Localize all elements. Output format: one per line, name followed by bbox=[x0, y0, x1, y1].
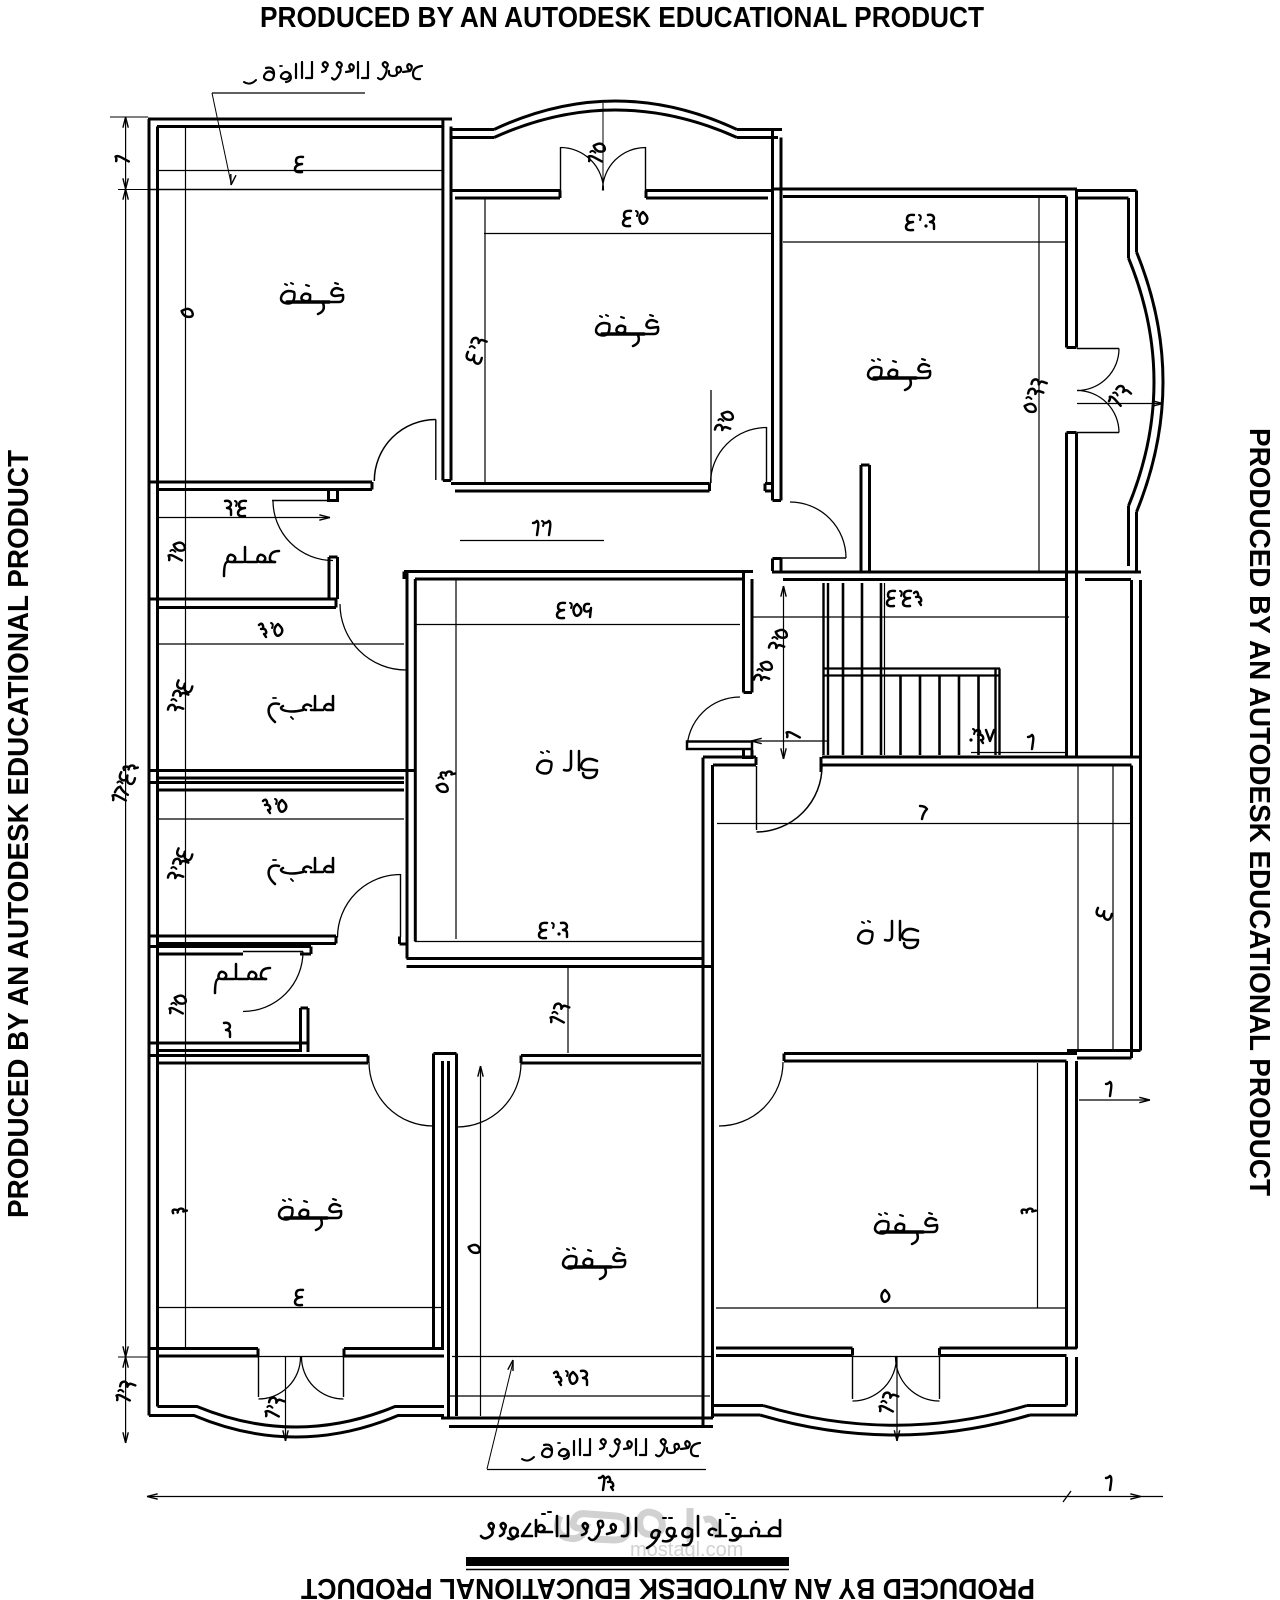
svg-text:PRODUCED BY AN AUTODESK EDUCAT: PRODUCED BY AN AUTODESK EDUCATIONAL PROD… bbox=[1243, 428, 1275, 1196]
svg-text:PRODUCED BY AN AUTODESK EDUCAT: PRODUCED BY AN AUTODESK EDUCATIONAL PROD… bbox=[301, 1572, 1035, 1600]
svg-text:PRODUCED BY AN AUTODESK EDUCAT: PRODUCED BY AN AUTODESK EDUCATIONAL PROD… bbox=[260, 2, 984, 34]
svg-text:PRODUCED BY AN AUTODESK EDUCAT: PRODUCED BY AN AUTODESK EDUCATIONAL PROD… bbox=[3, 450, 35, 1218]
